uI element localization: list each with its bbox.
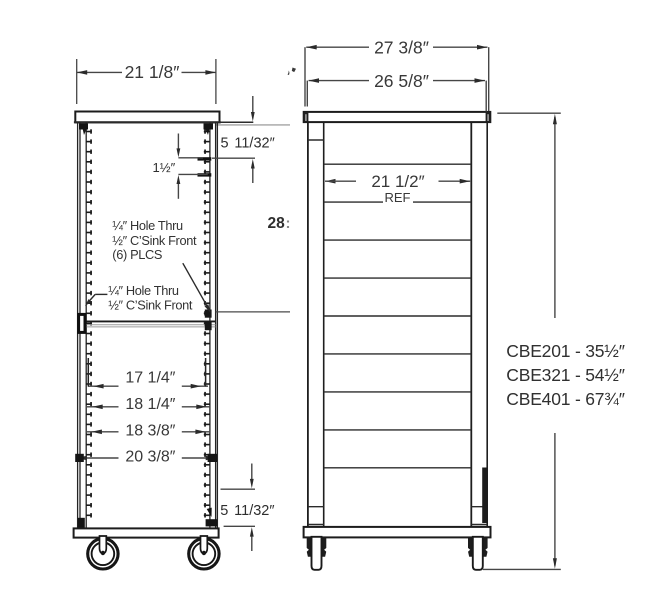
svg-text:26 5/8″: 26 5/8″ bbox=[374, 71, 429, 91]
svg-text::: : bbox=[286, 215, 291, 232]
svg-text:17 1/4″: 17 1/4″ bbox=[125, 369, 175, 386]
svg-text:5 11/32″: 5 11/32″ bbox=[220, 503, 274, 519]
svg-text:½″ C’Sink Front: ½″ C’Sink Front bbox=[108, 298, 193, 313]
svg-text:27 3/8″: 27 3/8″ bbox=[374, 37, 429, 57]
svg-text:21 1/8″: 21 1/8″ bbox=[125, 62, 180, 82]
svg-text:20 3/8″: 20 3/8″ bbox=[125, 448, 175, 465]
svg-text:18 3/8″: 18 3/8″ bbox=[125, 422, 175, 439]
svg-text:¼″ Hole Thru: ¼″ Hole Thru bbox=[112, 218, 183, 233]
svg-text:CBE401 - 67¾″: CBE401 - 67¾″ bbox=[506, 389, 624, 409]
svg-text:1½″: 1½″ bbox=[153, 160, 176, 175]
svg-text:REF: REF bbox=[385, 190, 411, 205]
svg-text:21 1/2″: 21 1/2″ bbox=[371, 172, 424, 191]
svg-text:¼″ Hole Thru: ¼″ Hole Thru bbox=[108, 283, 179, 298]
svg-text:5 11/32″: 5 11/32″ bbox=[221, 135, 275, 151]
svg-text:18 1/4″: 18 1/4″ bbox=[125, 396, 175, 413]
svg-text:28: 28 bbox=[268, 215, 286, 232]
svg-text:(6) PLCS: (6) PLCS bbox=[112, 247, 162, 262]
svg-text:CBE321 - 54½″: CBE321 - 54½″ bbox=[506, 365, 624, 385]
svg-text:CBE201 - 35½″: CBE201 - 35½″ bbox=[506, 341, 624, 361]
